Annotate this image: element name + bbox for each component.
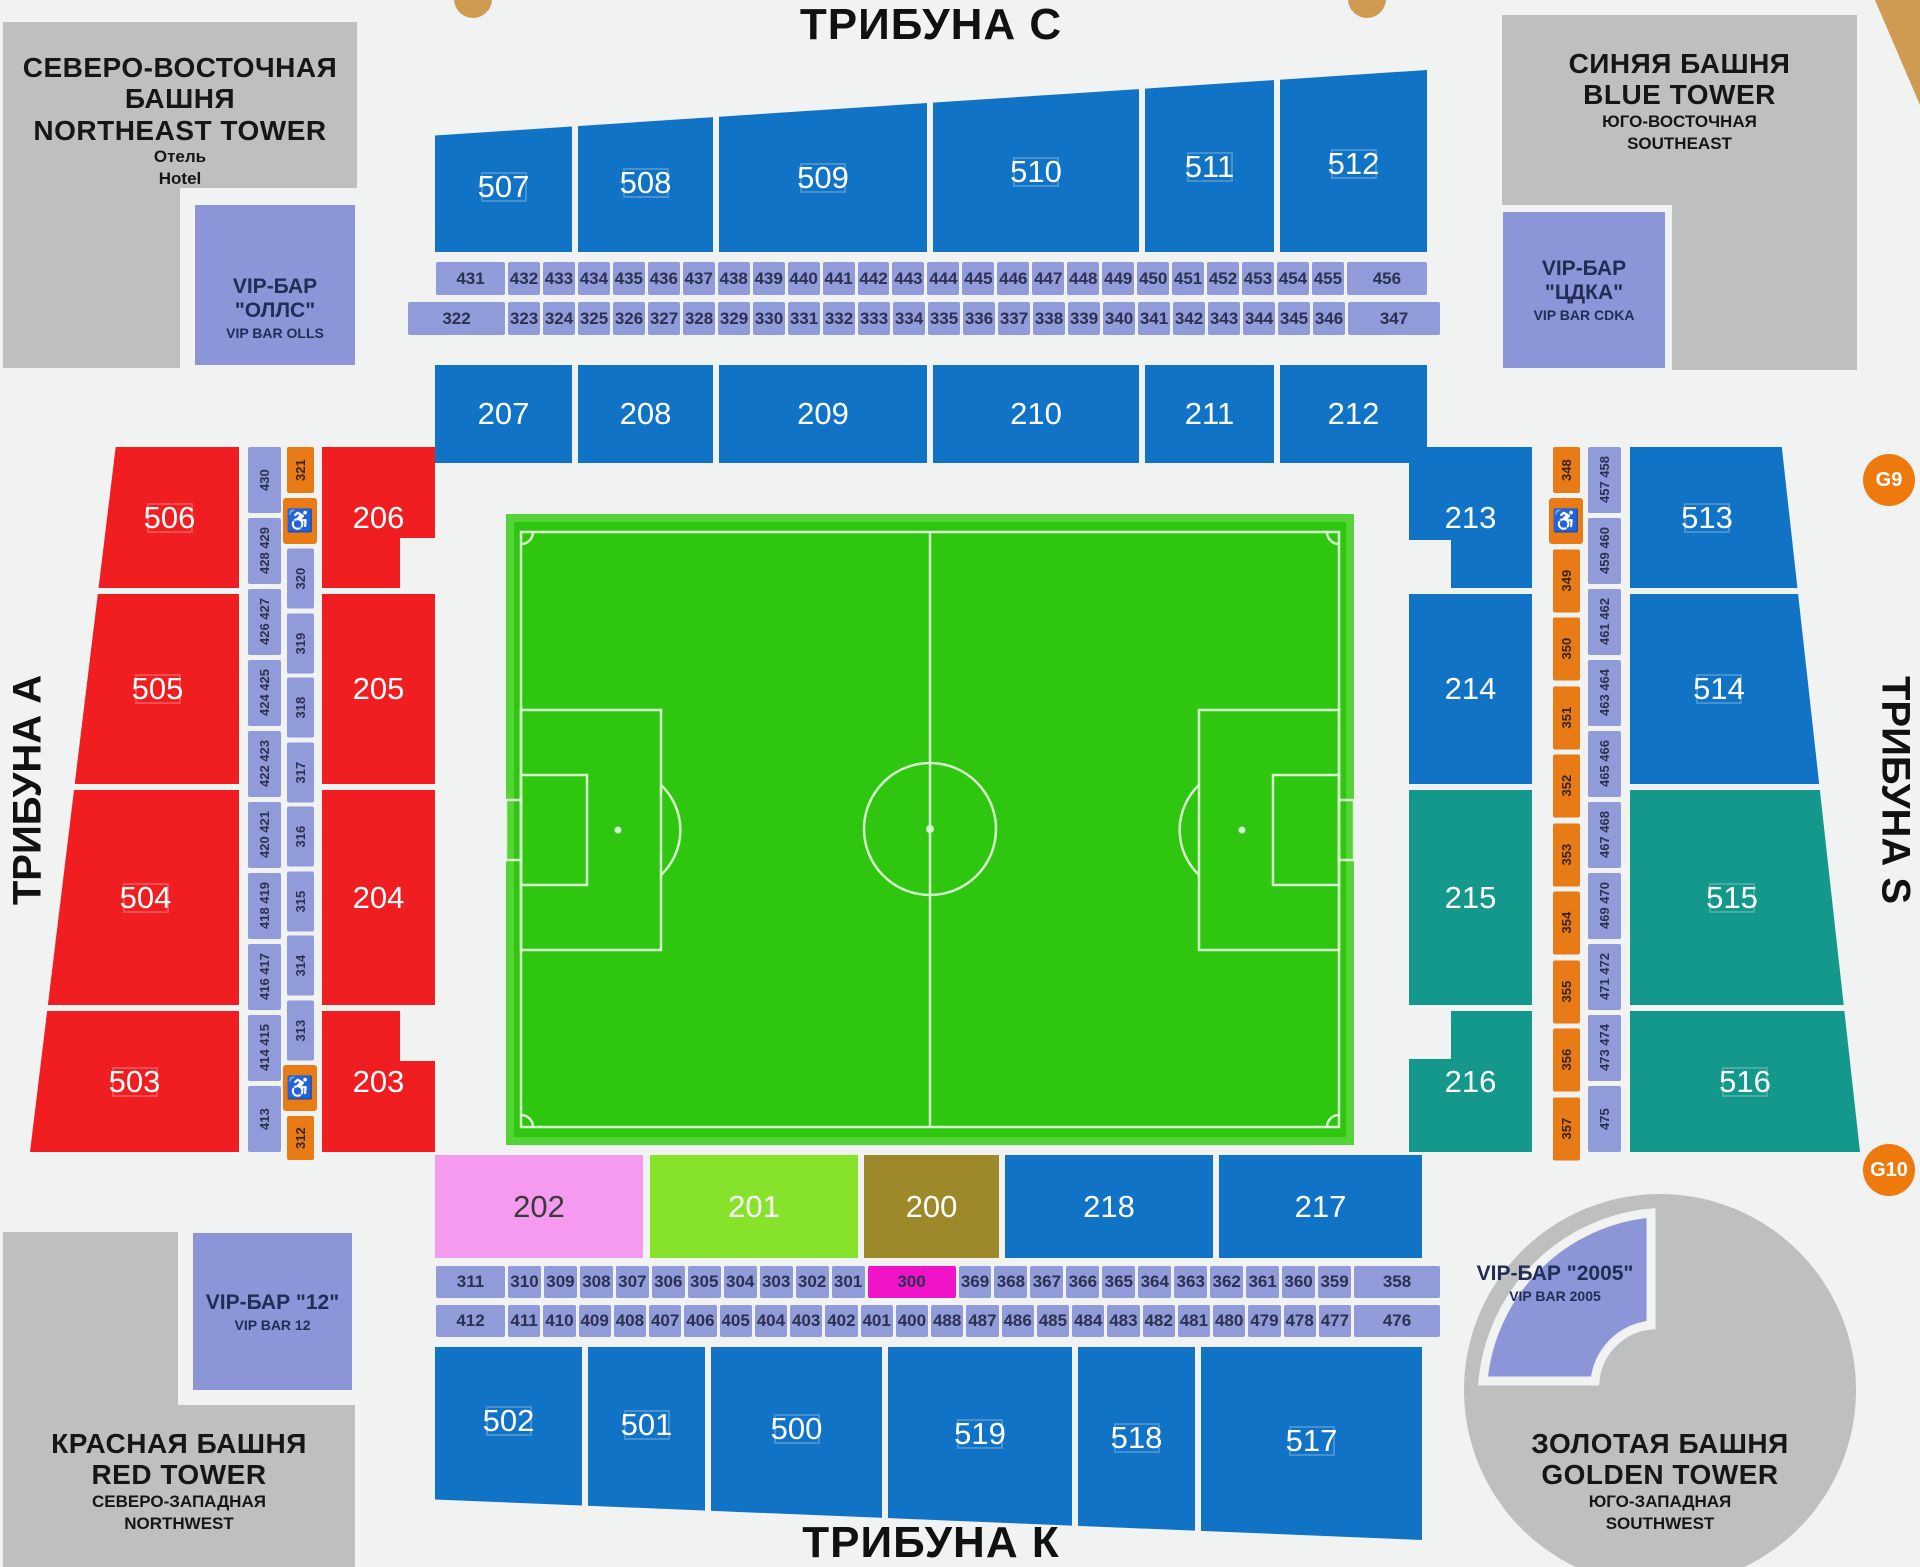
row-number-box[interactable]: 400 bbox=[896, 1305, 928, 1337]
row-number-box[interactable]: 339 bbox=[1068, 302, 1100, 335]
row-number-box[interactable]: 356 bbox=[1553, 1028, 1580, 1091]
row-number-box-300[interactable]: 300 bbox=[868, 1266, 956, 1298]
section-505[interactable]: 505 bbox=[30, 594, 239, 784]
row-number-box[interactable]: 461 462 bbox=[1588, 589, 1621, 655]
row-number-box[interactable]: 367 bbox=[1030, 1266, 1063, 1298]
row-number-box[interactable]: 305 bbox=[688, 1266, 721, 1298]
row-number-box[interactable]: 433 bbox=[543, 262, 575, 295]
tower-line2: BLUE TOWER bbox=[1583, 79, 1776, 110]
row-number-box[interactable]: 457 458 bbox=[1588, 447, 1621, 513]
stand-right-outer: 513 514 515 516 bbox=[1630, 447, 1860, 1152]
row-number-box[interactable]: 418 419 bbox=[248, 873, 281, 939]
section-514[interactable]: 514 bbox=[1630, 594, 1860, 784]
tribune-left-title: ТРИБУНА А bbox=[6, 675, 51, 905]
vip-bar-12-label: VIP-БАР "12" bbox=[206, 1291, 339, 1315]
tower-line1: ЗОЛОТАЯ БАШНЯ bbox=[1531, 1428, 1788, 1459]
row-number-box[interactable]: 403 bbox=[790, 1305, 822, 1337]
row-number-box[interactable]: 426 427 bbox=[248, 589, 281, 655]
row-number-box[interactable]: 402 bbox=[825, 1305, 857, 1337]
row-number-box[interactable]: 316 bbox=[287, 807, 314, 867]
row-number-box[interactable]: 342 bbox=[1173, 302, 1205, 335]
row-number-box[interactable]: 337 bbox=[998, 302, 1030, 335]
row-number-box[interactable]: 315 bbox=[287, 872, 314, 932]
vip-bar-2005-sublabel: VIP BAR 2005 bbox=[1475, 1288, 1635, 1304]
tower-line1: СЕВЕРО-ВОСТОЧНАЯ БАШНЯ bbox=[3, 52, 357, 115]
vip-bar-cdka-sublabel: VIP BAR CDKA bbox=[1534, 307, 1635, 323]
row-number-box[interactable]: 483 bbox=[1107, 1305, 1139, 1337]
row-number-box[interactable]: 341 bbox=[1138, 302, 1170, 335]
section-notch bbox=[1409, 540, 1451, 588]
row-number-box[interactable]: 358 bbox=[1354, 1266, 1440, 1298]
section-207[interactable]: 207 bbox=[435, 365, 572, 463]
row-number-box[interactable]: 467 468 bbox=[1588, 802, 1621, 868]
section-502[interactable]: 502 bbox=[435, 1347, 582, 1540]
row-number-box[interactable]: 407 bbox=[649, 1305, 681, 1337]
section-518[interactable]: 518 bbox=[1078, 1347, 1195, 1540]
row-number-box[interactable]: 405 bbox=[720, 1305, 752, 1337]
row-number-box[interactable]: 318 bbox=[287, 678, 314, 738]
row-number-box[interactable]: 420 421 bbox=[248, 802, 281, 868]
golden-tower-label: ЗОЛОТАЯ БАШНЯ GOLDEN TOWER ЮГО-ЗАПАДНАЯ … bbox=[1490, 1428, 1830, 1535]
row-number-box[interactable]: 401 bbox=[861, 1305, 893, 1337]
gate-g9[interactable]: G9 bbox=[1863, 454, 1915, 506]
seat-row-strip-left-inner: 321 ♿ 320319318317316315314313 ♿ 312 bbox=[287, 447, 314, 1160]
section-512[interactable]: 512 bbox=[1280, 70, 1427, 252]
row-number-box[interactable]: 413 bbox=[248, 1086, 281, 1152]
tower-line1: КРАСНАЯ БАШНЯ bbox=[51, 1428, 307, 1459]
row-number-box[interactable]: 477 bbox=[1319, 1305, 1351, 1337]
stand-top-outer: 507 508 509 510 511 512 bbox=[435, 70, 1427, 252]
row-number-box[interactable]: 340 bbox=[1103, 302, 1135, 335]
vip-bar-cdka-label: VIP-БАР "ЦДКА" bbox=[1503, 257, 1665, 305]
row-number-box[interactable]: 455 bbox=[1312, 262, 1344, 295]
row-number-box[interactable]: 430 bbox=[248, 447, 281, 513]
section-215[interactable]: 215 bbox=[1409, 790, 1532, 1005]
row-number-box[interactable]: 302 bbox=[796, 1266, 829, 1298]
section-200[interactable]: 200 bbox=[864, 1155, 999, 1258]
row-number-box[interactable]: 323 bbox=[508, 302, 540, 335]
row-number-box[interactable]: 309 bbox=[544, 1266, 577, 1298]
row-number-box[interactable]: 416 417 bbox=[248, 944, 281, 1010]
row-number-box[interactable]: 347 bbox=[1348, 302, 1440, 335]
vip-bar-cdka[interactable]: VIP-БАР "ЦДКА" VIP BAR CDKA bbox=[1503, 212, 1665, 368]
row-number-box[interactable]: 449 bbox=[1102, 262, 1134, 295]
row-number-box[interactable]: 452 bbox=[1207, 262, 1239, 295]
stadium-seat-map: ТРИБУНА С ТРИБУНА К ТРИБУНА А ТРИБУНА S … bbox=[0, 0, 1920, 1567]
section-516[interactable]: 516 bbox=[1630, 1011, 1860, 1152]
row-number-box[interactable]: 307 bbox=[616, 1266, 649, 1298]
row-number-box[interactable]: 301 bbox=[832, 1266, 865, 1298]
section-500[interactable]: 500 bbox=[711, 1347, 882, 1540]
row-number-box[interactable]: 447 bbox=[1032, 262, 1064, 295]
section-210[interactable]: 210 bbox=[933, 365, 1139, 463]
row-number-box[interactable]: 368 bbox=[994, 1266, 1027, 1298]
row-number-box[interactable]: 444 bbox=[927, 262, 959, 295]
tower-line4: SOUTHEAST bbox=[1627, 133, 1732, 155]
row-number-box[interactable]: 404 bbox=[755, 1305, 787, 1337]
row-number-box[interactable]: 456 bbox=[1347, 262, 1427, 295]
tower-line4: NORTHWEST bbox=[124, 1513, 234, 1535]
row-number-box[interactable]: 333 bbox=[858, 302, 890, 335]
section-510[interactable]: 510 bbox=[933, 70, 1139, 252]
row-number-box[interactable]: 442 bbox=[858, 262, 890, 295]
stand-bottom-inner: 202 201 200 218 217 bbox=[435, 1155, 1422, 1258]
section-508[interactable]: 508 bbox=[578, 70, 713, 252]
row-number-box[interactable]: 361 bbox=[1246, 1266, 1279, 1298]
tower-line3: ЮГО-ЗАПАДНАЯ bbox=[1589, 1491, 1732, 1513]
seat-row-bottom-1: 311 310309308307306305304303302301 300 3… bbox=[436, 1266, 1440, 1298]
vip-bar-12[interactable]: VIP-БАР "12" VIP BAR 12 bbox=[193, 1233, 352, 1390]
section-515[interactable]: 515 bbox=[1630, 790, 1860, 1005]
row-number-box[interactable]: 321 bbox=[287, 447, 314, 493]
row-number-box[interactable]: 330 bbox=[753, 302, 785, 335]
row-number-box[interactable]: 440 bbox=[788, 262, 820, 295]
section-511[interactable]: 511 bbox=[1145, 70, 1274, 252]
row-number-box[interactable]: 448 bbox=[1067, 262, 1099, 295]
tower-line3: СЕВЕРО-ЗАПАДНАЯ bbox=[92, 1491, 266, 1513]
row-number-box[interactable]: 352 bbox=[1553, 754, 1580, 817]
row-number-box[interactable]: 331 bbox=[788, 302, 820, 335]
row-number-box[interactable]: 366 bbox=[1066, 1266, 1099, 1298]
gate-dot-top-right bbox=[1348, 0, 1386, 18]
row-number-box[interactable]: 431 bbox=[436, 262, 505, 295]
row-number-box[interactable]: 482 bbox=[1143, 1305, 1175, 1337]
row-number-box[interactable]: 486 bbox=[1002, 1305, 1034, 1337]
row-number-box[interactable]: 344 bbox=[1243, 302, 1275, 335]
row-number-box[interactable]: 476 bbox=[1354, 1305, 1440, 1337]
tower-line2: NORTHEAST TOWER bbox=[33, 115, 326, 146]
tower-line2: RED TOWER bbox=[91, 1459, 266, 1490]
row-number-box[interactable]: 314 bbox=[287, 936, 314, 996]
tower-line3: ЮГО-ВОСТОЧНАЯ bbox=[1602, 111, 1757, 133]
tower-line1: СИНЯЯ БАШНЯ bbox=[1569, 48, 1791, 79]
section-509[interactable]: 509 bbox=[719, 70, 927, 252]
row-number-box[interactable]: 480 bbox=[1213, 1305, 1245, 1337]
row-number-box[interactable]: 438 bbox=[718, 262, 750, 295]
football-pitch bbox=[506, 514, 1354, 1145]
section-211[interactable]: 211 bbox=[1145, 365, 1274, 463]
vip-bar-olls-sublabel: VIP BAR OLLS bbox=[226, 325, 324, 341]
section-notch bbox=[400, 538, 435, 588]
section-212[interactable]: 212 bbox=[1280, 365, 1427, 463]
stand-left-outer: 506 505 504 503 bbox=[30, 447, 239, 1152]
row-number-box[interactable]: 422 423 bbox=[248, 731, 281, 797]
section-218[interactable]: 218 bbox=[1005, 1155, 1213, 1258]
row-number-box[interactable]: 459 460 bbox=[1588, 518, 1621, 584]
section-503[interactable]: 503 bbox=[30, 1011, 239, 1152]
row-number-box[interactable]: 450 bbox=[1137, 262, 1169, 295]
row-number-box[interactable]: 313 bbox=[287, 1001, 314, 1061]
section-204[interactable]: 204 bbox=[322, 790, 435, 1005]
section-202[interactable]: 202 bbox=[435, 1155, 643, 1258]
tower-line4: SOUTHWEST bbox=[1606, 1513, 1715, 1535]
row-number-box[interactable]: 478 bbox=[1284, 1305, 1316, 1337]
vip-bar-olls[interactable]: VIP-БАР "ОЛЛС" VIP BAR OLLS bbox=[195, 205, 355, 365]
seat-row-strip-right-inner: 348 ♿ 349350351352353354355356357 bbox=[1553, 447, 1580, 1160]
row-number-box[interactable]: 338 bbox=[1033, 302, 1065, 335]
row-number-box[interactable]: 303 bbox=[760, 1266, 793, 1298]
row-number-box[interactable]: 325 bbox=[578, 302, 610, 335]
corner-wedge bbox=[1875, 0, 1920, 105]
row-number-box[interactable]: 463 464 bbox=[1588, 660, 1621, 726]
red-tower-label: КРАСНАЯ БАШНЯ RED TOWER СЕВЕРО-ЗАПАДНАЯ … bbox=[3, 1428, 355, 1535]
seat-row-strip-left-outer: 430428 429426 427424 425422 423420 42141… bbox=[248, 447, 281, 1152]
tower-line2: GOLDEN TOWER bbox=[1541, 1459, 1778, 1490]
section-504[interactable]: 504 bbox=[30, 790, 239, 1005]
row-number-box[interactable]: 475 bbox=[1588, 1086, 1621, 1152]
row-number-box[interactable]: 348 bbox=[1553, 447, 1580, 493]
section-209[interactable]: 209 bbox=[719, 365, 927, 463]
tower-line4: Hotel bbox=[159, 168, 202, 190]
northeast-tower-label: СЕВЕРО-ВОСТОЧНАЯ БАШНЯ NORTHEAST TOWER О… bbox=[3, 52, 357, 190]
row-number-box[interactable]: 409 bbox=[579, 1305, 611, 1337]
row-number-box[interactable]: 412 bbox=[436, 1305, 505, 1337]
row-number-box[interactable]: 310 bbox=[508, 1266, 541, 1298]
row-number-box[interactable]: 445 bbox=[962, 262, 994, 295]
row-number-box[interactable]: 360 bbox=[1282, 1266, 1315, 1298]
row-number-box[interactable]: 428 429 bbox=[248, 518, 281, 584]
row-number-box[interactable]: 471 472 bbox=[1588, 944, 1621, 1010]
row-number-box[interactable]: 446 bbox=[997, 262, 1029, 295]
blue-tower-label: СИНЯЯ БАШНЯ BLUE TOWER ЮГО-ВОСТОЧНАЯ SOU… bbox=[1502, 48, 1857, 155]
section-205[interactable]: 205 bbox=[322, 594, 435, 784]
row-number-box[interactable]: 441 bbox=[823, 262, 855, 295]
row-number-box[interactable]: 437 bbox=[683, 262, 715, 295]
row-number-box[interactable]: 354 bbox=[1553, 891, 1580, 954]
row-number-box[interactable]: 306 bbox=[652, 1266, 685, 1298]
row-number-box[interactable]: 479 bbox=[1248, 1305, 1280, 1337]
row-number-box[interactable]: 485 bbox=[1037, 1305, 1069, 1337]
stand-bottom-outer: 502 501 500 519 518 517 bbox=[435, 1347, 1422, 1540]
wheelchair-icon[interactable]: ♿ bbox=[1549, 498, 1583, 544]
row-number-box[interactable]: 328 bbox=[683, 302, 715, 335]
row-number-box[interactable]: 443 bbox=[892, 262, 924, 295]
seat-row-top-1: 431 432433434435436437438439440441442443… bbox=[436, 262, 1427, 295]
row-number-box[interactable]: 363 bbox=[1174, 1266, 1207, 1298]
row-number-box[interactable]: 334 bbox=[893, 302, 925, 335]
row-number-box[interactable]: 308 bbox=[580, 1266, 613, 1298]
row-number-box[interactable]: 364 bbox=[1138, 1266, 1171, 1298]
seat-row-top-2: 322 323324325326327328329330331332333334… bbox=[408, 302, 1440, 335]
section-214[interactable]: 214 bbox=[1409, 594, 1532, 784]
row-number-box[interactable]: 414 415 bbox=[248, 1015, 281, 1081]
row-number-box[interactable]: 327 bbox=[648, 302, 680, 335]
section-notch bbox=[1409, 1011, 1451, 1059]
tribune-bottom-title: ТРИБУНА К bbox=[802, 1518, 1059, 1567]
row-number-box[interactable]: 351 bbox=[1553, 686, 1580, 749]
vip-bar-olls-label: VIP-БАР "ОЛЛС" bbox=[195, 275, 355, 323]
section-506[interactable]: 506 bbox=[30, 447, 239, 588]
row-number-box[interactable]: 349 bbox=[1553, 549, 1580, 612]
row-number-box[interactable]: 473 474 bbox=[1588, 1015, 1621, 1081]
row-number-box[interactable]: 369 bbox=[959, 1266, 992, 1298]
row-number-box[interactable]: 488 bbox=[931, 1305, 963, 1337]
row-number-box[interactable]: 362 bbox=[1210, 1266, 1243, 1298]
row-number-box[interactable]: 317 bbox=[287, 743, 314, 803]
wheelchair-icon[interactable]: ♿ bbox=[283, 1065, 317, 1111]
seat-row-bottom-2: 412 411410409408407406405404403402401400… bbox=[436, 1305, 1440, 1337]
row-number-box[interactable]: 469 470 bbox=[1588, 873, 1621, 939]
row-number-box[interactable]: 408 bbox=[614, 1305, 646, 1337]
section-501[interactable]: 501 bbox=[588, 1347, 705, 1540]
wheelchair-icon[interactable]: ♿ bbox=[283, 498, 317, 544]
row-number-box[interactable]: 319 bbox=[287, 614, 314, 674]
row-number-box[interactable]: 345 bbox=[1278, 302, 1310, 335]
vip-bar-2005-label: VIP-БАР "2005" bbox=[1475, 1262, 1635, 1286]
seat-row-strip-right-outer: 457 458459 460461 462463 464465 466467 4… bbox=[1588, 447, 1621, 1152]
row-number-box[interactable]: 434 bbox=[578, 262, 610, 295]
row-number-box[interactable]: 439 bbox=[753, 262, 785, 295]
row-number-box[interactable]: 324 bbox=[543, 302, 575, 335]
tribune-top-title: ТРИБУНА С bbox=[800, 0, 1062, 50]
row-number-box[interactable]: 304 bbox=[724, 1266, 757, 1298]
row-number-box[interactable]: 481 bbox=[1178, 1305, 1210, 1337]
row-number-box[interactable]: 487 bbox=[966, 1305, 998, 1337]
section-517[interactable]: 517 bbox=[1201, 1347, 1422, 1540]
gate-g10[interactable]: G10 bbox=[1863, 1144, 1915, 1196]
row-number-box[interactable]: 411 bbox=[508, 1305, 540, 1337]
row-number-box[interactable]: 484 bbox=[1072, 1305, 1104, 1337]
row-number-box[interactable]: 432 bbox=[508, 262, 540, 295]
section-217[interactable]: 217 bbox=[1219, 1155, 1422, 1258]
row-number-box[interactable]: 336 bbox=[963, 302, 995, 335]
row-number-box[interactable]: 406 bbox=[684, 1305, 716, 1337]
row-number-box[interactable]: 359 bbox=[1318, 1266, 1351, 1298]
row-number-box[interactable]: 326 bbox=[613, 302, 645, 335]
section-201[interactable]: 201 bbox=[650, 1155, 858, 1258]
row-number-box[interactable]: 451 bbox=[1172, 262, 1204, 295]
row-number-box[interactable]: 350 bbox=[1553, 617, 1580, 680]
gate-dot-top-left bbox=[454, 0, 492, 18]
row-number-box[interactable]: 346 bbox=[1313, 302, 1345, 335]
row-number-box[interactable]: 410 bbox=[543, 1305, 575, 1337]
row-number-box[interactable]: 320 bbox=[287, 549, 314, 609]
vip-bar-12-sublabel: VIP BAR 12 bbox=[235, 1317, 311, 1333]
row-number-box[interactable]: 357 bbox=[1553, 1097, 1580, 1160]
row-number-box[interactable]: 454 bbox=[1277, 262, 1309, 295]
section-513[interactable]: 513 bbox=[1630, 447, 1860, 588]
row-number-box[interactable]: 355 bbox=[1553, 960, 1580, 1023]
row-number-box[interactable]: 353 bbox=[1553, 823, 1580, 886]
section-507[interactable]: 507 bbox=[435, 70, 572, 252]
row-number-box[interactable]: 435 bbox=[613, 262, 645, 295]
row-number-box[interactable]: 335 bbox=[928, 302, 960, 335]
row-number-box[interactable]: 312 bbox=[287, 1116, 314, 1160]
row-number-box[interactable]: 453 bbox=[1242, 262, 1274, 295]
tribune-right-title: ТРИБУНА S bbox=[1873, 676, 1918, 904]
row-number-box[interactable]: 311 bbox=[436, 1266, 505, 1298]
row-number-box[interactable]: 332 bbox=[823, 302, 855, 335]
vip-bar-2005[interactable]: VIP-БАР "2005" VIP BAR 2005 bbox=[1475, 1262, 1635, 1304]
row-number-box[interactable]: 424 425 bbox=[248, 660, 281, 726]
row-number-box[interactable]: 465 466 bbox=[1588, 731, 1621, 797]
tower-line3: Отель bbox=[154, 146, 206, 168]
section-notch bbox=[400, 1011, 435, 1061]
row-number-box[interactable]: 436 bbox=[648, 262, 680, 295]
row-number-box[interactable]: 322 bbox=[408, 302, 505, 335]
row-number-box[interactable]: 365 bbox=[1102, 1266, 1135, 1298]
section-519[interactable]: 519 bbox=[888, 1347, 1072, 1540]
stand-top-inner: 207 208 209 210 211 212 bbox=[435, 365, 1427, 463]
row-number-box[interactable]: 329 bbox=[718, 302, 750, 335]
section-208[interactable]: 208 bbox=[578, 365, 713, 463]
row-number-box[interactable]: 343 bbox=[1208, 302, 1240, 335]
